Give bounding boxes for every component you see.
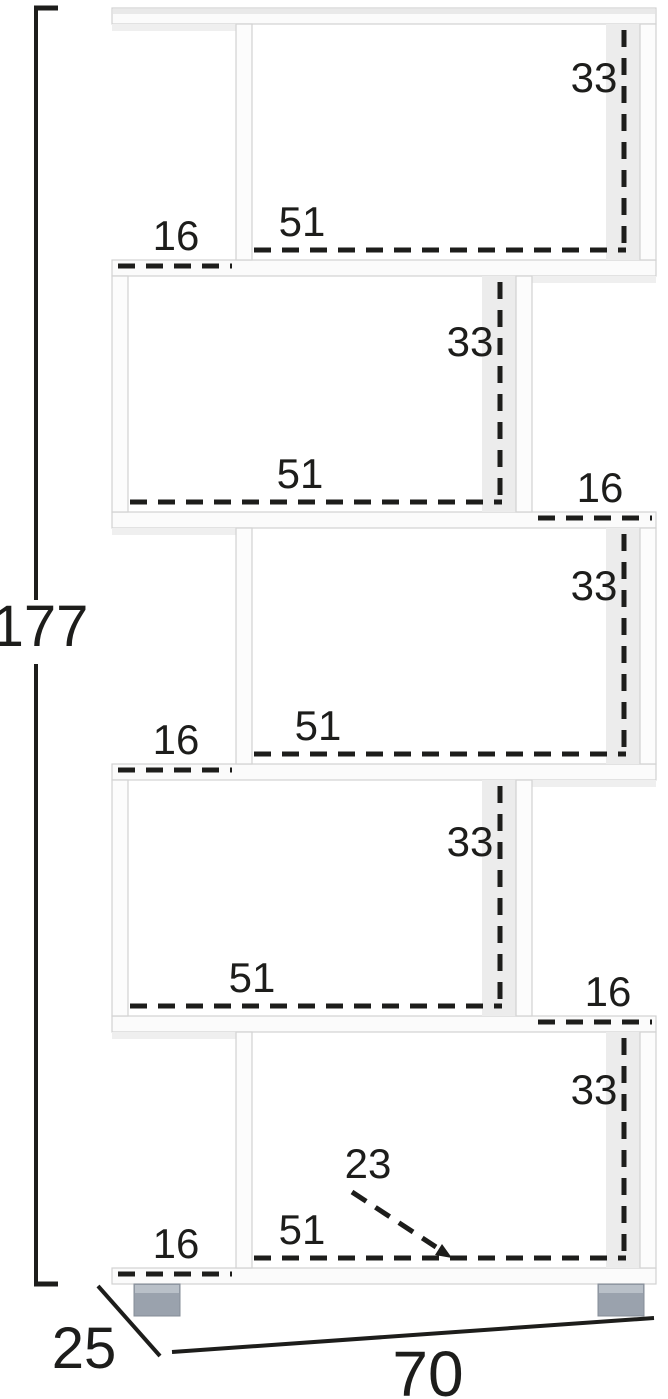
tier-1-offset-label: 16: [153, 212, 200, 259]
tier-1-height-label: 33: [571, 54, 618, 101]
tier-4-offset-label: 16: [585, 968, 632, 1015]
tier-4-divider-panel: [516, 780, 532, 1016]
tier-5-offset-label: 16: [153, 1220, 200, 1267]
overall-height-label: 177: [0, 594, 88, 659]
tier-2-step-shadow: [532, 276, 656, 283]
tier-4-height-label: 33: [447, 818, 494, 865]
tier-5-width-label: 51: [279, 1206, 326, 1253]
shelf-board-1: [112, 260, 656, 276]
bookshelf: [112, 8, 656, 1316]
tier-4-structure: [112, 780, 656, 1016]
tier-3-height-label: 33: [571, 562, 618, 609]
tier-2-height-label: 33: [447, 318, 494, 365]
dimension-annotations: 177 25 70 33 51 16 33 51: [0, 8, 654, 1399]
feet: [134, 1284, 644, 1316]
tier-2-left-panel: [112, 276, 128, 512]
tier-1-width-label: 51: [279, 198, 326, 245]
tier-5-depth-label: 23: [345, 1140, 392, 1187]
tier-3-left-panel: [236, 528, 252, 764]
tier-4-dimensions: 33 51 16: [130, 786, 652, 1022]
bottom-board: [112, 1268, 656, 1284]
overall-width-dimension: 70: [172, 1318, 654, 1399]
right-foot-top: [599, 1285, 643, 1293]
bookshelf-dimension-diagram: 177 25 70 33 51 16 33 51: [0, 0, 668, 1399]
tier-3-offset-label: 16: [153, 716, 200, 763]
tier-2-dimensions: 33 51 16: [130, 282, 652, 518]
tier-4-step-shadow: [532, 780, 656, 787]
tier-2-structure: [112, 276, 656, 512]
overall-depth-label: 25: [52, 1316, 117, 1381]
diagram-stage: 177 25 70 33 51 16 33 51: [0, 0, 668, 1399]
tier-3-width-label: 51: [295, 702, 342, 749]
overall-width-label: 70: [392, 1338, 463, 1399]
tier-5-height-label: 33: [571, 1066, 618, 1113]
tier-1-dimensions: 33 51 16: [118, 30, 626, 266]
tier-5-depth-dim-line: [352, 1192, 436, 1247]
tier-5-dimensions: 33 51 23 16: [118, 1038, 626, 1274]
tier-4-left-panel: [112, 780, 128, 1016]
top-board-surface: [113, 9, 655, 14]
tier-3-dimensions: 33 51 16: [118, 534, 626, 770]
tier-5-step-shadow: [112, 1032, 236, 1039]
tier-3-right-panel: [640, 528, 656, 764]
tier-2-width-label: 51: [277, 450, 324, 497]
tier-1-right-panel: [640, 24, 656, 260]
tier-1-step-shadow: [112, 24, 236, 31]
tier-5-left-panel: [236, 1032, 252, 1268]
tier-2-offset-label: 16: [577, 464, 624, 511]
tier-5-depth-dimension: 23: [345, 1140, 452, 1258]
tier-5-right-panel: [640, 1032, 656, 1268]
tier-2-divider-panel: [516, 276, 532, 512]
tier-4-width-label: 51: [229, 954, 276, 1001]
tier-3-step-shadow: [112, 528, 236, 535]
shelf-board-3: [112, 764, 656, 780]
overall-height-dimension: 177: [0, 8, 88, 1284]
left-foot-top: [135, 1285, 179, 1293]
tier-1-left-panel: [236, 24, 252, 260]
